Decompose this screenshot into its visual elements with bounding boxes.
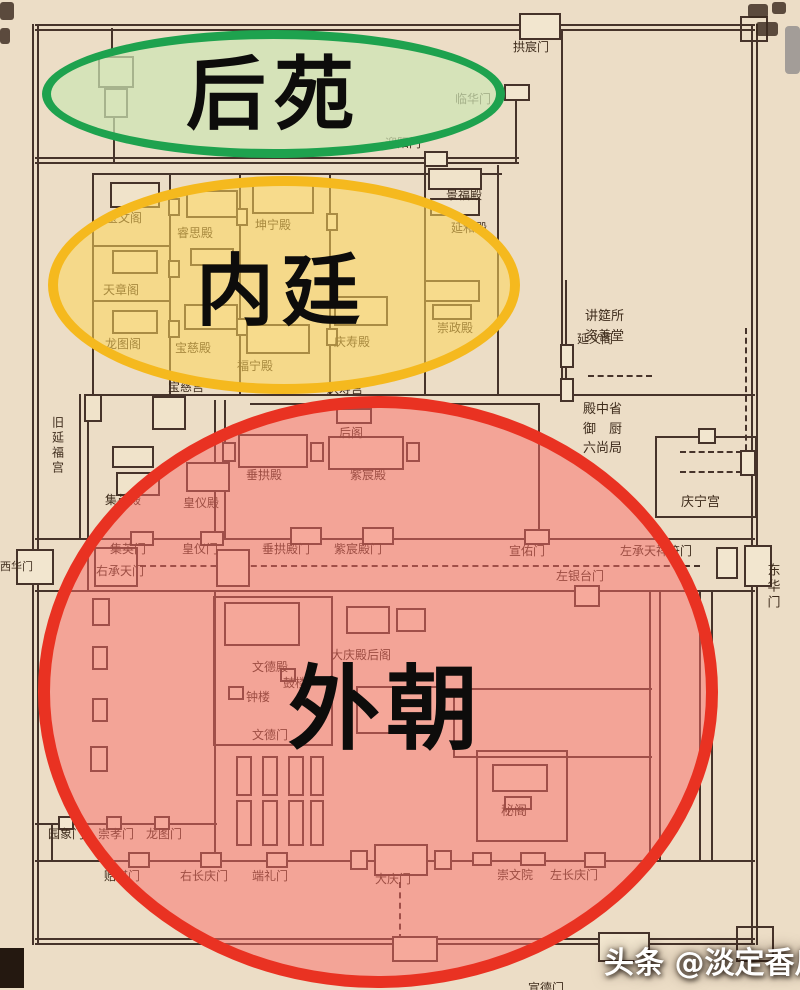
gate-box	[740, 450, 756, 476]
building	[112, 446, 154, 468]
building	[84, 394, 102, 422]
gate-box	[560, 344, 574, 368]
map-label: 西华门	[0, 561, 33, 573]
clipped-text-artifact	[748, 4, 768, 18]
wall-segment	[32, 24, 39, 945]
gate-box	[519, 13, 561, 40]
clipped-text-artifact	[0, 2, 14, 20]
map-label: 六尚局	[583, 442, 622, 457]
map-label: 景福殿	[446, 189, 482, 202]
map-label: 御 厨	[583, 423, 622, 438]
map-label: 讲筵所	[585, 310, 624, 325]
wall-segment	[79, 394, 81, 540]
map-label: 殿中省	[583, 403, 622, 418]
gate-box	[424, 151, 448, 167]
clipped-text-artifact	[772, 2, 786, 14]
map-label: 宣德门	[528, 982, 564, 990]
map-label: 资善堂	[585, 330, 624, 345]
clipped-text-artifact	[756, 22, 778, 36]
map-label: 旧延福宫	[50, 416, 63, 476]
corner-tower-dark	[0, 948, 24, 988]
zone-label-inner-court: 内廷	[196, 253, 368, 331]
map-label: 东华门	[764, 563, 779, 611]
watermark: 头条 @淡定香瓜o1	[604, 938, 800, 982]
gate-box	[560, 378, 574, 402]
wall-segment	[561, 30, 563, 396]
building	[152, 396, 186, 430]
palace-map: 拱宸门临华门迎阳门景福殿延和殿宝文阁睿思殿坤宁殿天章阁龙图阁宝慈殿福宁殿庆寿殿崇…	[0, 0, 800, 990]
map-label: 拱宸门	[513, 41, 549, 54]
map-label: 庆宁宫	[681, 496, 720, 511]
gate-box	[698, 428, 716, 444]
dashed-line	[588, 375, 652, 377]
zone-label-rear-garden: 后苑	[186, 55, 362, 135]
gate-box	[716, 547, 738, 579]
gate-box	[504, 84, 530, 101]
scrollbar-thumb[interactable]	[785, 26, 800, 74]
wall-segment	[35, 24, 755, 31]
zone-label-outer-court: 外朝	[288, 664, 484, 756]
clipped-text-artifact	[0, 28, 10, 44]
building	[428, 168, 482, 190]
